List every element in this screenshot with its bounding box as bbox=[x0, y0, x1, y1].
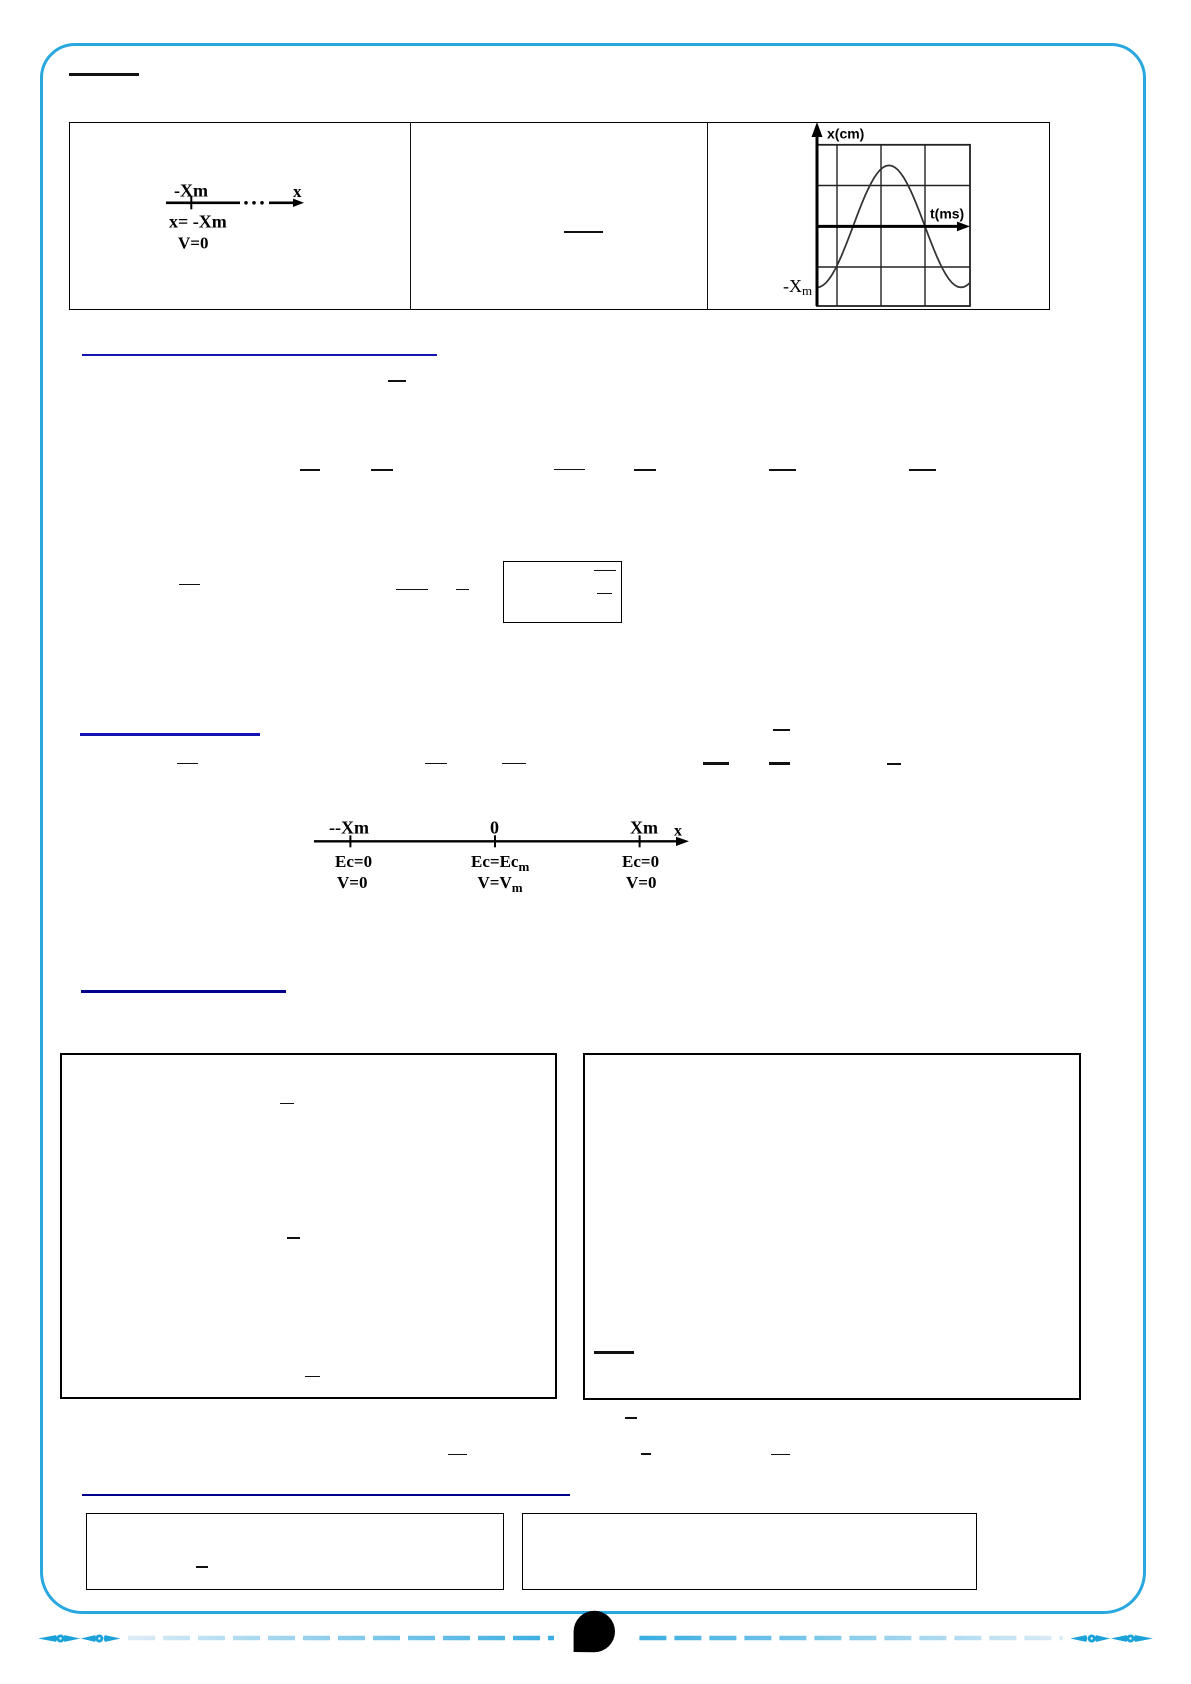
svg-text:0: 0 bbox=[490, 818, 499, 838]
svg-text:V=0: V=0 bbox=[626, 873, 656, 892]
svg-text:Ec=0: Ec=0 bbox=[335, 852, 372, 871]
svg-text:x= -Xm: x= -Xm bbox=[169, 212, 227, 232]
svg-text:t(ms): t(ms) bbox=[930, 206, 964, 222]
svg-text:Ec=Ecm: Ec=Ecm bbox=[471, 852, 529, 874]
svg-text:x(cm): x(cm) bbox=[827, 126, 864, 142]
svg-text:V=0: V=0 bbox=[178, 234, 208, 253]
svg-text:x: x bbox=[293, 182, 302, 201]
svg-text:V=Vm: V=Vm bbox=[478, 873, 523, 895]
svg-text:-Xm: -Xm bbox=[783, 276, 812, 298]
svg-text:x: x bbox=[674, 823, 682, 840]
svg-text:--Xm: --Xm bbox=[329, 818, 369, 838]
svg-text:V=0: V=0 bbox=[337, 873, 367, 892]
svg-text:Xm: Xm bbox=[630, 818, 658, 838]
svg-text:Ec=0: Ec=0 bbox=[622, 852, 659, 871]
